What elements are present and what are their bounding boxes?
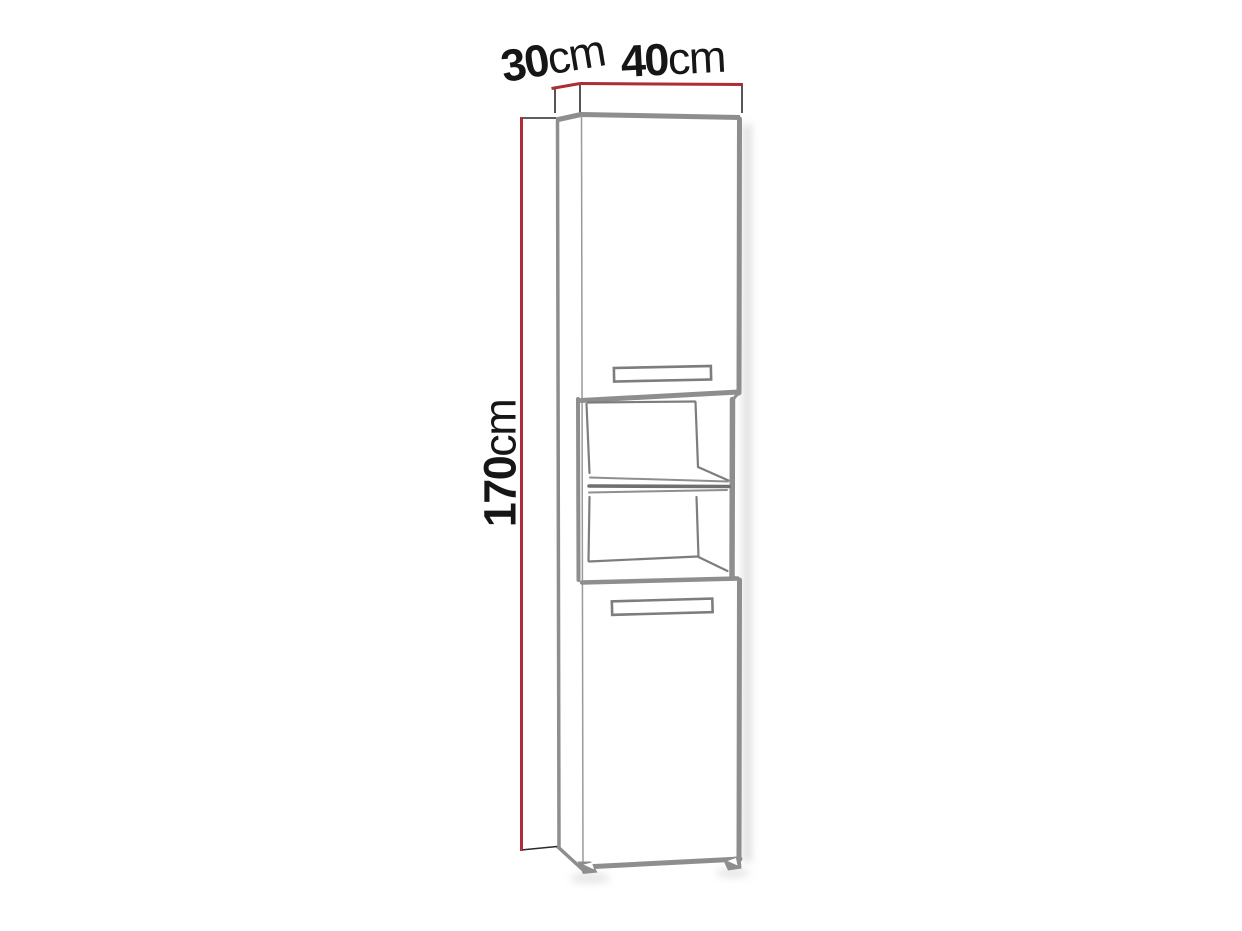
niche-inner-left-wall-lower: [589, 497, 590, 561]
bottom-door-top-edge: [582, 579, 738, 583]
left-foot: [578, 862, 598, 875]
right-foot: [723, 856, 742, 871]
height-unit: cm: [475, 400, 526, 457]
depth-unit: cm: [543, 24, 608, 84]
height-label: 170cm: [478, 364, 523, 564]
width-unit: cm: [666, 31, 726, 85]
right-foot-shadow: [716, 869, 750, 878]
depth-dimension-line: [552, 84, 581, 89]
top-door-bottom-edge: [582, 392, 739, 401]
niche-lower-corner-perspective-line: [699, 557, 728, 571]
niche-inner-top-edge: [588, 402, 695, 403]
height-value: 170: [475, 457, 526, 528]
niche-inner-left-wall-upper: [587, 404, 590, 473]
cabinet-sketch: [0, 0, 1242, 931]
side-shadow: [742, 124, 752, 862]
cabinet-shadow: [570, 124, 752, 883]
width-label: 40cm: [620, 34, 726, 84]
niche-inner-right-wall-lower: [697, 497, 699, 557]
side-panel-outer-edge: [558, 121, 560, 847]
shelf-front-edge: [589, 486, 729, 487]
shelf-top-line: [590, 478, 728, 482]
top-door: [582, 119, 740, 401]
bottom-door-handle-bar: [612, 599, 713, 615]
niche-inner-right-wall-upper: [696, 402, 699, 467]
bottom-door-right-edge: [739, 580, 740, 858]
top-door-right-edge: [739, 119, 740, 393]
top-door-handle: [614, 366, 711, 382]
bottom-door-handle: [612, 599, 713, 615]
niche-right-frame-edge: [732, 400, 733, 578]
carcass-top-edge: [556, 115, 740, 121]
width-value: 40: [619, 34, 669, 87]
left-foot-shadow: [570, 873, 610, 883]
niche-inner-bottom-edge: [589, 557, 698, 562]
shelf-bottom-line: [589, 490, 727, 493]
cabinet-top-panel: [555, 84, 742, 120]
shelf-niche: [578, 393, 739, 580]
diagram-canvas: 30cm 40cm 170cm: [0, 0, 1242, 931]
depth-value: 30: [497, 34, 552, 92]
side-panel-bottom-edge: [558, 847, 582, 869]
bottom-door: [582, 579, 740, 868]
top-door-handle-bar: [614, 366, 711, 382]
front-left-corner-edge: [582, 116, 584, 866]
height-extension-tick-bottom: [521, 847, 557, 851]
niche-left-frame-edge: [578, 399, 579, 580]
niche-upper-corner-perspective-line: [698, 467, 729, 481]
cabinet-bottom-edge: [584, 859, 740, 867]
dimension-lines: [521, 84, 743, 852]
middle-shelf: [589, 478, 729, 493]
